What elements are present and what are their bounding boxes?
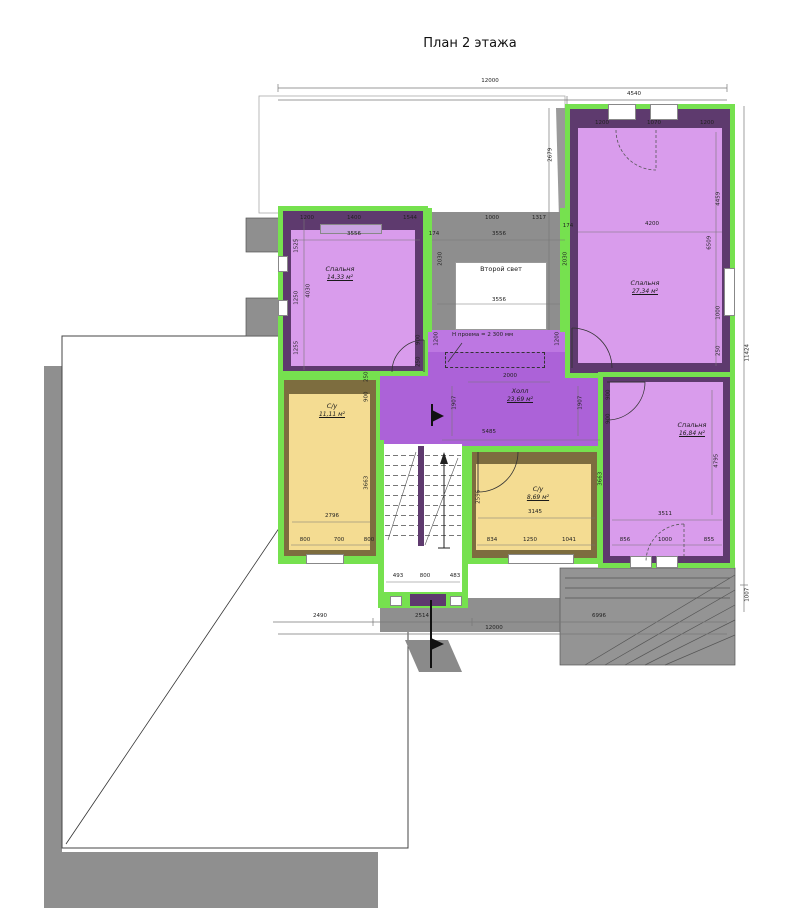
dim-label: 1070: [637, 121, 671, 127]
dim-label: 3663: [364, 466, 370, 500]
dim-label: 1000: [475, 216, 509, 222]
dim-label: 1007: [745, 578, 751, 612]
dim-label: 1907: [578, 386, 584, 420]
stair-direction-arrow: [440, 452, 448, 464]
dim-label: 12000: [473, 79, 507, 85]
dim-label: 4200: [635, 222, 669, 228]
dim-label: 1525: [294, 229, 300, 263]
dim-label: 6996: [582, 614, 616, 620]
room-area: 14,33 м²: [310, 274, 370, 281]
dim-label: 3556: [482, 232, 516, 238]
floor-plan-canvas: План 2 этажа: [0, 0, 800, 910]
room-label-bedroom2: Спальня 27,34 м²: [615, 280, 675, 295]
dim-label: 3145: [518, 510, 552, 516]
room-area: 8,69 м²: [508, 494, 568, 501]
dim-label: 1544: [393, 216, 427, 222]
dim-label: 1200: [555, 322, 561, 356]
dim-label: 1250: [294, 281, 300, 315]
dim-label: 800: [288, 538, 322, 544]
room-name: Спальня: [326, 265, 355, 273]
leader-line: [448, 343, 462, 362]
dim-label: 900: [606, 402, 612, 436]
dim-label: 1200: [585, 121, 619, 127]
section-mark-arrow: [431, 638, 444, 650]
dim-label: 12000: [477, 626, 511, 632]
dim-label: 2030: [438, 242, 444, 276]
dimension-linework: [0, 0, 800, 910]
dim-label: 11424: [745, 336, 751, 370]
dim-label: 800: [352, 538, 386, 544]
dim-label: 1317: [522, 216, 556, 222]
dim-label: 3556: [337, 232, 371, 238]
dim-label: 834: [475, 538, 509, 544]
room-name: Спальня: [678, 421, 707, 429]
dim-label: 174: [417, 232, 451, 238]
dim-label: 4459: [716, 182, 722, 216]
dim-label: 1200: [690, 121, 724, 127]
dim-label: 855: [692, 538, 726, 544]
room-label-bedroom3: Спальня 16,84 м²: [662, 422, 722, 437]
dim-label: 1255: [294, 331, 300, 365]
dim-label: 2030: [563, 242, 569, 276]
dim-label: 250: [716, 334, 722, 368]
room-name: Второй свет: [480, 265, 522, 273]
dim-label: 6509: [707, 226, 713, 260]
dim-label: 700: [322, 538, 356, 544]
dim-label: 1250: [513, 538, 547, 544]
dim-label: 3556: [482, 298, 516, 304]
room-area: 27,34 м²: [615, 288, 675, 295]
room-label-void: Второй свет: [466, 266, 536, 274]
dim-label: 2490: [303, 614, 337, 620]
dim-label: 1041: [552, 538, 586, 544]
dim-label: 250: [416, 345, 422, 379]
room-area: 23,69 м²: [490, 396, 550, 403]
dim-label: 2514: [405, 614, 439, 620]
room-name: Холл: [512, 387, 529, 395]
opening-height-note: Н проема = 2 300 мм: [452, 332, 513, 338]
dim-label: 1200: [434, 322, 440, 356]
room-area: 11,11 м²: [302, 411, 362, 418]
dim-label: 4030: [306, 274, 312, 308]
door-arc-bedroom3: [607, 382, 645, 420]
door-arc-bedroom2: [572, 328, 612, 368]
dim-label: 1000: [648, 538, 682, 544]
room-name: С/у: [533, 485, 544, 493]
dim-label: 800: [408, 574, 442, 580]
dim-label: 5485: [472, 430, 506, 436]
dim-label: 4540: [617, 92, 651, 98]
dim-label: 2679: [548, 138, 554, 172]
room-label-hall: Холл 23,69 м²: [490, 388, 550, 403]
dim-label: 1400: [337, 216, 371, 222]
dim-label: 483: [438, 574, 472, 580]
room-label-wc1: С/у 11,11 м²: [302, 403, 362, 418]
room-label-bedroom1: Спальня 14,33 м²: [310, 266, 370, 281]
section-mark-arrow: [432, 410, 444, 422]
dim-label: 2596: [476, 480, 482, 514]
dim-label: 3663: [598, 462, 604, 496]
room-name: Спальня: [631, 279, 660, 287]
dim-label: 2000: [493, 374, 527, 380]
dim-label: 250: [364, 360, 370, 394]
door-arc-bedroom2-top: [616, 130, 656, 170]
dim-label: 2796: [315, 514, 349, 520]
dim-label: 1000: [716, 296, 722, 330]
dim-label: 174: [551, 224, 585, 230]
dim-label: 1907: [452, 386, 458, 420]
room-label-wc2: С/у 8,69 м²: [508, 486, 568, 501]
dim-label: 856: [608, 538, 642, 544]
room-area: 16,84 м²: [662, 430, 722, 437]
room-name: С/у: [327, 402, 338, 410]
dim-label: 1200: [290, 216, 324, 222]
dim-label: 3511: [648, 512, 682, 518]
dim-label: 4795: [714, 444, 720, 478]
